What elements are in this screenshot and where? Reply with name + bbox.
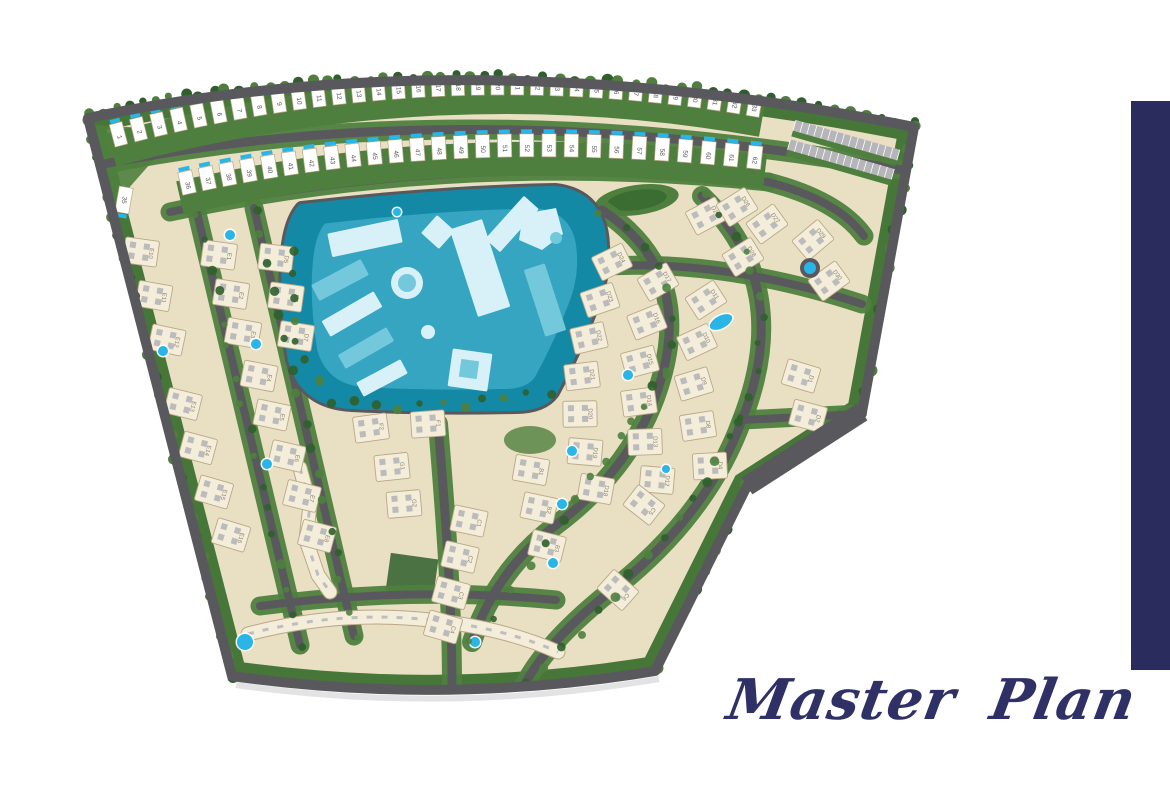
townhouse-lot: 47 <box>409 133 425 161</box>
townhouse-lot: 62 <box>747 141 764 170</box>
pool <box>251 339 261 349</box>
townhouse-number: 62 <box>750 156 758 164</box>
villa-label: G2 <box>410 499 417 508</box>
townhouse-number: 14 <box>374 88 382 96</box>
master-plan-page: 1234567891011121314151617181920212223242… <box>0 0 1170 785</box>
townhouse-number: 45 <box>371 152 379 160</box>
pool <box>662 465 670 473</box>
villa-block: F1 <box>410 410 446 438</box>
page-title: Master Plan <box>720 655 1136 745</box>
villa-block: D6 <box>267 282 304 312</box>
townhouse-number: 53 <box>545 145 552 153</box>
villa-block: D4 <box>692 452 727 480</box>
townhouse-lot: 43 <box>323 141 340 170</box>
townhouse-number: 43 <box>328 157 336 165</box>
townhouse-number: 49 <box>457 146 464 154</box>
townhouse-number: 11 <box>315 95 323 103</box>
pool <box>557 499 567 509</box>
villa-label: D13 <box>651 436 657 448</box>
townhouse-number: 50 <box>479 145 486 153</box>
townhouse-lot: 49 <box>453 131 468 159</box>
villa-label: G1 <box>398 462 405 471</box>
villa-block: B1 <box>512 454 550 486</box>
townhouse-number: 48 <box>435 147 442 155</box>
townhouse-lot: 57 <box>632 132 647 160</box>
pool <box>623 370 633 380</box>
townhouse-lot: 60 <box>700 136 716 165</box>
townhouse-lot: 61 <box>723 138 740 167</box>
townhouse-lot: 44 <box>344 139 361 168</box>
villa-label: D20 <box>586 408 592 420</box>
townhouse-number: 41 <box>286 162 294 171</box>
pool <box>225 230 235 240</box>
villa-block: G1 <box>374 452 411 481</box>
townhouse-number: 44 <box>349 154 357 162</box>
pool <box>393 208 401 216</box>
villa-label: D12 <box>663 475 670 487</box>
townhouse-lot: 46 <box>387 135 403 164</box>
townhouse-number: 52 <box>523 145 530 153</box>
pool <box>548 558 558 568</box>
townhouse-number: 12 <box>335 92 343 100</box>
townhouse-lot: 45 <box>366 136 383 165</box>
villa-block: D5 <box>258 243 295 273</box>
townhouse-number: 56 <box>612 146 619 154</box>
right-accent-bar <box>1131 101 1170 670</box>
villa-block: D21 <box>564 361 601 391</box>
townhouse-lot: 56 <box>609 131 624 159</box>
townhouse-number: 13 <box>354 90 362 98</box>
lagoon-clubhouse-area <box>286 191 602 407</box>
villa-block: D13 <box>628 428 663 455</box>
townhouse-lot: 58 <box>654 133 670 161</box>
villa-block: D14 <box>620 387 657 417</box>
villa-block: E1 <box>200 240 237 270</box>
roundabout-pool <box>804 262 816 274</box>
townhouse-number: 17 <box>434 84 441 92</box>
villa-label: D3 <box>820 454 828 463</box>
villa-block: G2 <box>386 490 422 519</box>
townhouse-number: 57 <box>635 147 642 155</box>
townhouse-number: 10 <box>295 97 303 106</box>
townhouse-number: 16 <box>414 85 421 93</box>
townhouse-number: 58 <box>658 148 665 156</box>
villa-block: D20 <box>563 401 597 428</box>
townhouse-number: 42 <box>307 159 315 167</box>
villa-label: D5 <box>282 255 289 264</box>
townhouse-number: 61 <box>727 154 735 162</box>
townhouse-number: 54 <box>567 145 574 153</box>
townhouse-number: 47 <box>414 149 422 157</box>
townhouse-lot: 59 <box>677 134 693 162</box>
townhouse-number: 46 <box>392 150 400 158</box>
townhouse-lot: 48 <box>431 132 447 160</box>
villa-label: D19 <box>591 447 598 459</box>
pool <box>237 634 253 650</box>
villa-block: D8 <box>679 411 717 442</box>
villa-block: D18 <box>577 473 615 505</box>
villa-block: F2 <box>352 413 389 443</box>
townhouse-number: 55 <box>590 145 597 153</box>
pool <box>567 446 577 456</box>
townhouse-number: 15 <box>394 87 402 95</box>
townhouse-number: 51 <box>501 145 508 153</box>
townhouse-number: 59 <box>681 150 689 158</box>
pool <box>158 346 168 356</box>
villa-label: F1 <box>434 420 441 428</box>
pool <box>262 459 272 469</box>
townhouse-number: 60 <box>704 152 712 160</box>
